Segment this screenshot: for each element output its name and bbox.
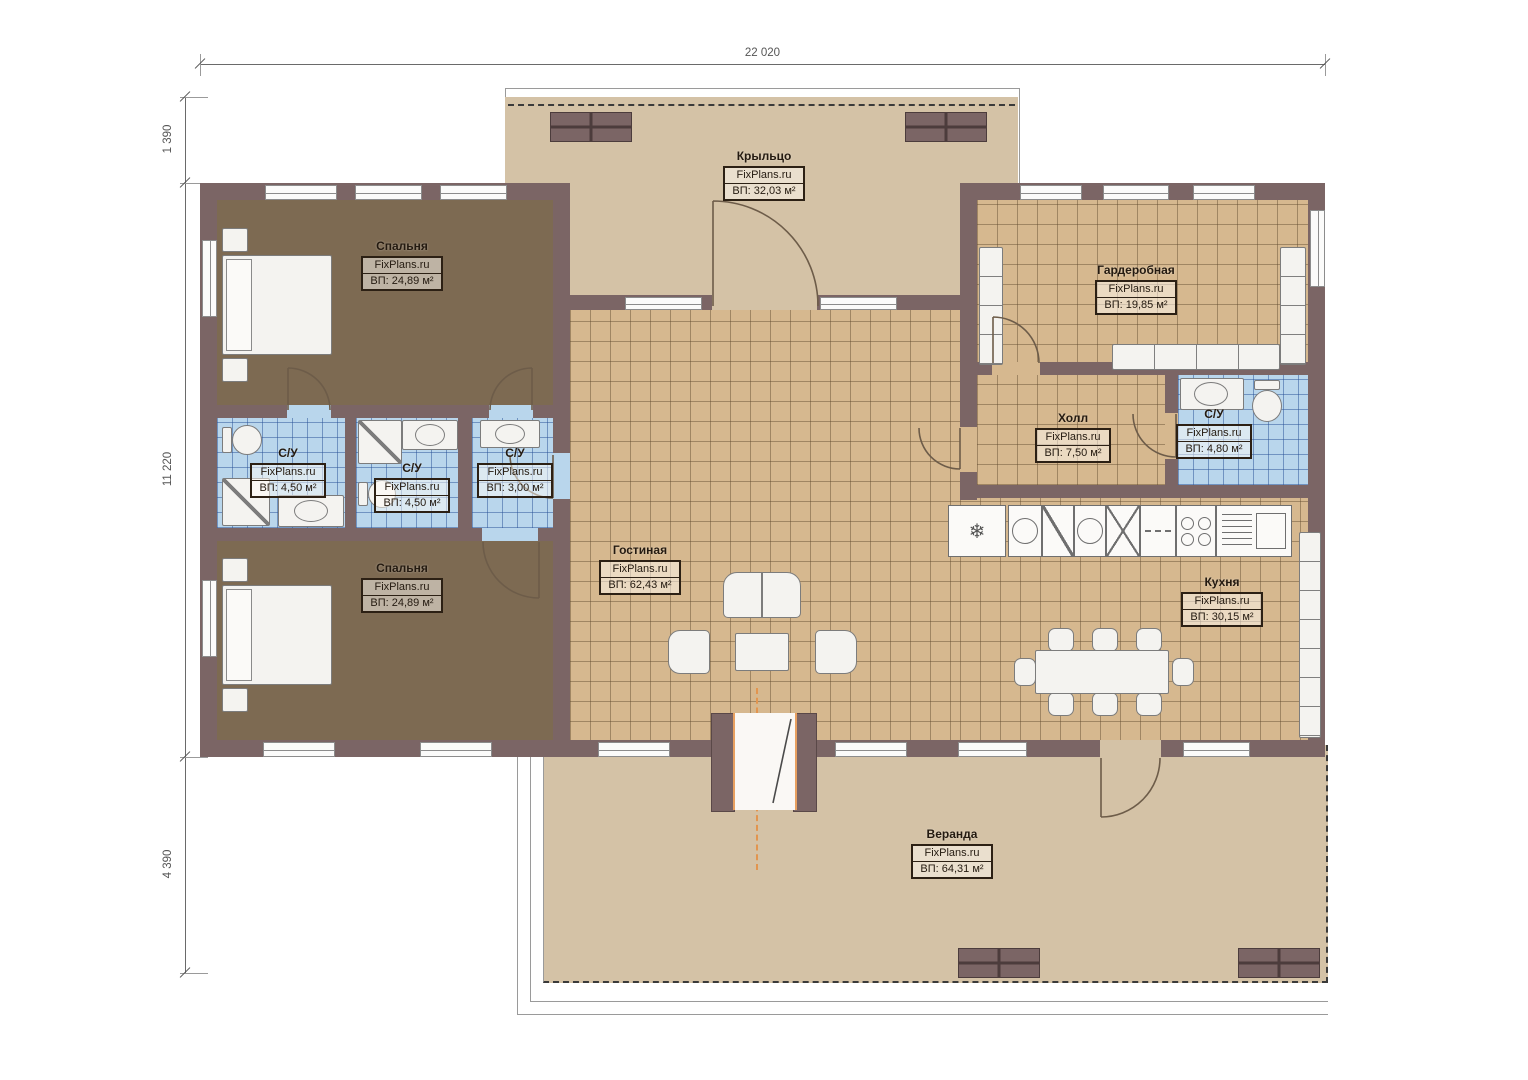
room-name: Кухня — [1157, 576, 1287, 589]
nightstand — [222, 358, 248, 382]
brand-watermark: FixPlans.ru — [363, 580, 440, 596]
kitchen-veranda-door-arc — [1100, 757, 1162, 819]
stove-icon — [1176, 505, 1216, 557]
washing-machine-icon — [1008, 505, 1042, 557]
window — [1020, 185, 1082, 200]
dimension-line-top — [200, 64, 1325, 65]
armchair — [668, 630, 710, 674]
sink — [294, 500, 328, 522]
room-info-box: FixPlans.ruВП: 7,50 м² — [1035, 428, 1110, 463]
room-label-bedroom1: Спальня FixPlans.ruВП: 24,89 м² — [337, 240, 467, 291]
entrance-door-swing-line — [735, 713, 795, 810]
room-name: С/У — [450, 447, 580, 460]
window — [598, 742, 670, 757]
room-label-living: Гостиная FixPlans.ruВП: 62,43 м² — [575, 544, 705, 595]
dining-chair — [1172, 658, 1194, 686]
room-label-veranda: Веранда FixPlans.ruВП: 64,31 м² — [887, 828, 1017, 879]
room-info-box: FixPlans.ruВП: 19,85 м² — [1095, 280, 1176, 315]
sink — [495, 424, 525, 444]
brand-watermark: FixPlans.ru — [479, 465, 550, 481]
room-info-box: FixPlans.ruВП: 24,89 м² — [361, 256, 442, 291]
dining-chair — [1136, 628, 1162, 652]
room-area: ВП: 32,03 м² — [725, 184, 802, 199]
room-info-box: FixPlans.ruВП: 32,03 м² — [723, 166, 804, 201]
dimension-label-11220: 11 220 — [162, 437, 174, 501]
window — [202, 580, 217, 657]
room-area: ВП: 3,00 м² — [479, 481, 550, 496]
room-name: С/У — [1149, 408, 1279, 421]
wall-leftwing-south — [200, 740, 570, 757]
sofa — [723, 572, 801, 618]
window — [820, 297, 897, 310]
dining-chair — [1014, 658, 1036, 686]
armchair — [815, 630, 857, 674]
room-name: Спальня — [337, 240, 467, 253]
dimension-label-top: 22 020 — [700, 47, 825, 59]
room-label-su1: С/У FixPlans.ruВП: 4,50 м² — [223, 447, 353, 498]
room-info-box: FixPlans.ruВП: 4,50 м² — [250, 463, 325, 498]
window — [625, 297, 702, 310]
wardrobe-door-arc — [992, 316, 1040, 364]
hall-door-arc — [918, 427, 962, 471]
window — [958, 742, 1027, 757]
room-info-box: FixPlans.ruВП: 30,15 м² — [1181, 592, 1262, 627]
appliance-circle-icon — [1074, 505, 1106, 557]
dining-chair — [1092, 692, 1118, 716]
window — [263, 742, 335, 757]
door-opening-bedroom2 — [482, 528, 538, 541]
window — [355, 185, 422, 200]
brand-watermark: FixPlans.ru — [1037, 430, 1108, 446]
counter-x-icon — [1106, 505, 1140, 557]
extension-line — [200, 54, 201, 76]
room-label-kitchen: Кухня FixPlans.ruВП: 30,15 м² — [1157, 576, 1287, 627]
window — [835, 742, 907, 757]
counter-gap — [1140, 505, 1176, 557]
nightstand — [222, 688, 248, 712]
room-area: ВП: 62,43 м² — [601, 578, 678, 593]
wall-hall-south — [960, 485, 1308, 498]
room-label-bedroom2: Спальня FixPlans.ruВП: 24,89 м² — [337, 562, 467, 613]
kitchen-cabinet-column — [1299, 532, 1321, 738]
entrance-door-leaf — [733, 713, 797, 810]
nightstand — [222, 558, 248, 582]
living-room-floor — [570, 310, 960, 742]
room-area: ВП: 30,15 м² — [1183, 610, 1260, 625]
room-area: ВП: 19,85 м² — [1097, 298, 1174, 313]
wardrobe-shelves — [1280, 247, 1306, 365]
brand-watermark: FixPlans.ru — [1097, 282, 1174, 298]
porch-edge-dashed — [508, 104, 1015, 106]
window — [420, 742, 492, 757]
bedroom1-door2-arc — [489, 367, 534, 411]
brand-watermark: FixPlans.ru — [1178, 426, 1249, 442]
window — [440, 185, 507, 200]
veranda-column — [1238, 948, 1320, 978]
room-info-box: FixPlans.ruВП: 3,00 м² — [477, 463, 552, 498]
room-area: ВП: 64,31 м² — [913, 862, 990, 877]
window — [1193, 185, 1255, 200]
floor-plan: 22 020 1 390 11 220 4 390 — [0, 0, 1528, 1080]
brand-watermark: FixPlans.ru — [601, 562, 678, 578]
room-area: ВП: 4,50 м² — [252, 481, 323, 496]
window — [202, 240, 217, 317]
room-area: ВП: 4,80 м² — [1178, 442, 1249, 457]
room-label-porch: Крыльцо FixPlans.ruВП: 32,03 м² — [699, 150, 829, 201]
bedroom2-door-arc — [482, 541, 540, 599]
room-name: Крыльцо — [699, 150, 829, 163]
dishwasher-icon — [1042, 505, 1074, 557]
stove-burners — [1181, 517, 1212, 546]
room-label-su4: С/У FixPlans.ruВП: 4,80 м² — [1149, 408, 1279, 459]
room-name: Спальня — [337, 562, 467, 575]
dining-chair — [1136, 692, 1162, 716]
brand-watermark: FixPlans.ru — [252, 465, 323, 481]
porch-column — [550, 112, 632, 142]
room-name: Веранда — [887, 828, 1017, 841]
window — [265, 185, 337, 200]
room-name: Гардеробная — [1071, 264, 1201, 277]
coffee-table — [735, 633, 789, 671]
room-info-box: FixPlans.ruВП: 62,43 м² — [599, 560, 680, 595]
sink — [415, 424, 445, 446]
room-area: ВП: 24,89 м² — [363, 274, 440, 289]
room-info-box: FixPlans.ruВП: 4,80 м² — [1176, 424, 1251, 459]
wardrobe-shelves — [1112, 344, 1280, 370]
room-area: ВП: 24,89 м² — [363, 596, 440, 611]
room-area: ВП: 4,50 м² — [376, 496, 447, 511]
room-info-box: FixPlans.ruВП: 24,89 м² — [361, 578, 442, 613]
bedroom1-door-arc — [287, 367, 332, 411]
fridge-icon: ❄ — [948, 505, 1006, 557]
brand-watermark: FixPlans.ru — [376, 480, 447, 496]
sink-basin — [1256, 513, 1286, 549]
brand-watermark: FixPlans.ru — [913, 846, 990, 862]
brand-watermark: FixPlans.ru — [725, 168, 802, 184]
room-name: Гостиная — [575, 544, 705, 557]
window — [1183, 742, 1250, 757]
dimension-label-1390: 1 390 — [162, 107, 174, 171]
window — [1103, 185, 1169, 200]
dining-chair — [1048, 628, 1074, 652]
porch-column — [905, 112, 987, 142]
brand-watermark: FixPlans.ru — [1183, 594, 1260, 610]
dining-chair — [1092, 628, 1118, 652]
bed — [222, 585, 332, 685]
door-opening-veranda — [1100, 740, 1161, 757]
room-area: ВП: 7,50 м² — [1037, 446, 1108, 461]
window — [1310, 210, 1325, 287]
room-name: С/У — [223, 447, 353, 460]
nightstand — [222, 228, 248, 252]
dining-chair — [1048, 692, 1074, 716]
bed-pillow — [226, 259, 252, 351]
entrance-jamb-left — [711, 713, 735, 812]
washer-drum — [1012, 518, 1038, 544]
toilet-tank — [1254, 380, 1280, 390]
circle-symbol — [1077, 518, 1103, 544]
bed — [222, 255, 332, 355]
dining-table — [1035, 650, 1169, 694]
veranda-column — [958, 948, 1040, 978]
room-info-box: FixPlans.ruВП: 64,31 м² — [911, 844, 992, 879]
door-opening-hall — [960, 427, 977, 472]
kitchen-sink — [1216, 505, 1292, 557]
sink — [1194, 382, 1228, 406]
dashed-symbol — [1145, 530, 1171, 532]
extension-line — [1325, 54, 1326, 76]
porch-door-arc — [712, 200, 819, 308]
room-label-wardrobe: Гардеробная FixPlans.ruВП: 19,85 м² — [1071, 264, 1201, 315]
room-label-su3: С/У FixPlans.ruВП: 3,00 м² — [450, 447, 580, 498]
shower — [358, 420, 402, 464]
sink-drainer — [1222, 514, 1252, 548]
brand-watermark: FixPlans.ru — [363, 258, 440, 274]
bed-pillow — [226, 589, 252, 681]
room-name: Холл — [1008, 412, 1138, 425]
room-info-box: FixPlans.ruВП: 4,50 м² — [374, 478, 449, 513]
room-label-hall: Холл FixPlans.ruВП: 7,50 м² — [1008, 412, 1138, 463]
dimension-line-left — [185, 97, 186, 973]
dimension-label-4390: 4 390 — [162, 832, 174, 896]
